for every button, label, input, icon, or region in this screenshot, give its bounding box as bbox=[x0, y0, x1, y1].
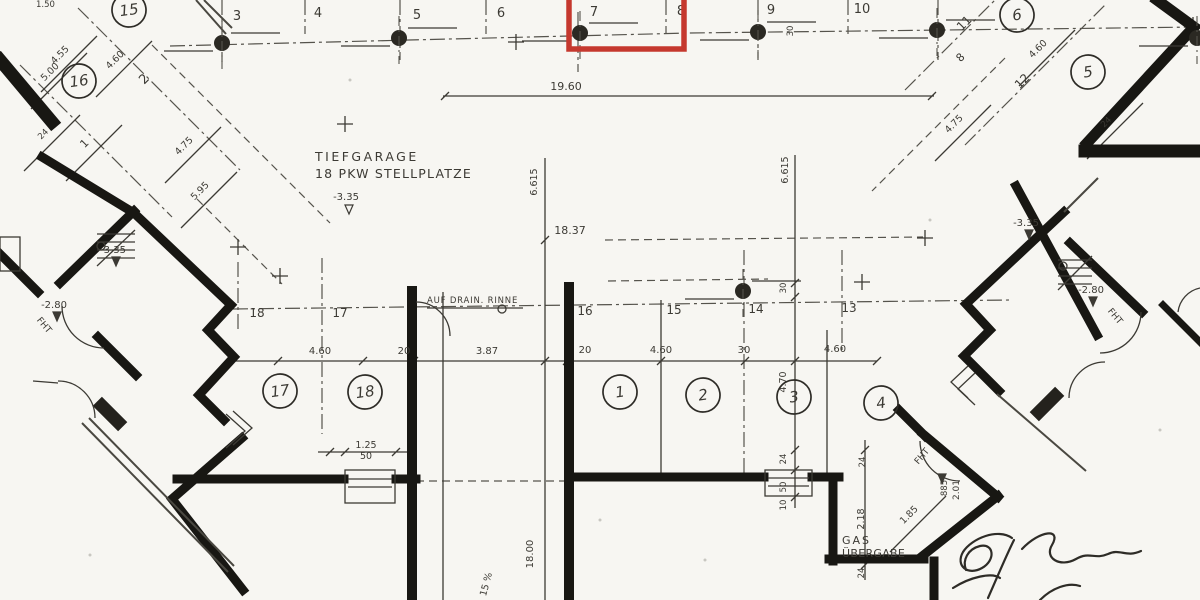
plan-label: 50 bbox=[360, 451, 372, 462]
plan-label: 17 bbox=[332, 306, 347, 320]
plan-label: -3.35 bbox=[1013, 218, 1039, 229]
number-text: 4 bbox=[875, 393, 887, 412]
plan-label: 8 bbox=[953, 50, 967, 64]
plan-label: AUF DRAIN. RINNE bbox=[427, 296, 518, 306]
plan-label: 6 bbox=[497, 6, 505, 21]
floor-plan-drawing: TIEFGARAGE18 PKW STELLPLATZEAUF DRAIN. R… bbox=[0, 0, 1200, 600]
plan-label: 3.87 bbox=[476, 346, 498, 357]
plan-label: FHT bbox=[34, 316, 53, 336]
plan-label: 9 bbox=[767, 3, 775, 18]
number-text: 17 bbox=[269, 381, 291, 402]
level-markers bbox=[53, 205, 1097, 483]
plan-label: -3.35 bbox=[333, 192, 359, 203]
plan-label: 24 bbox=[857, 568, 867, 579]
level-marker-filled bbox=[112, 257, 120, 266]
plan-label: 4.60 bbox=[824, 344, 846, 355]
plan-label: GAS bbox=[842, 534, 871, 547]
level-marker-open bbox=[345, 205, 353, 214]
plan-label: 19.60 bbox=[550, 80, 582, 93]
column bbox=[164, 21, 280, 69]
plan-text-labels: TIEFGARAGE18 PKW STELLPLATZEAUF DRAIN. R… bbox=[34, 0, 1124, 597]
plan-label: 4.60 bbox=[650, 345, 672, 356]
plan-label: 4 bbox=[314, 6, 322, 21]
plan-label: 18.00 bbox=[525, 540, 536, 569]
plan-label: 2.01 bbox=[952, 480, 962, 500]
wall-pier-right bbox=[1030, 387, 1065, 422]
plan-label: 24 bbox=[779, 454, 789, 465]
circled-number: 1 bbox=[601, 373, 639, 411]
plan-label: 10 bbox=[779, 500, 789, 511]
plan-label: 1.50 bbox=[36, 0, 55, 10]
plan-label: 7 bbox=[590, 5, 598, 20]
plan-label: 15 bbox=[666, 303, 681, 317]
column bbox=[700, 10, 816, 58]
level-marker-filled bbox=[1089, 297, 1097, 306]
plan-label: 1 bbox=[77, 136, 91, 150]
plan-label: -2.80 bbox=[41, 300, 67, 311]
plan-label: 3 bbox=[233, 9, 241, 24]
plan-label: 2.18 bbox=[856, 508, 867, 529]
dashed-construction-lines bbox=[152, 45, 1005, 481]
scan-specks bbox=[89, 79, 1162, 562]
plan-label: 18.37 bbox=[554, 224, 586, 237]
plan-label: 885 bbox=[940, 480, 950, 496]
plan-label: 10 bbox=[854, 2, 871, 17]
plan-label: -3.35 bbox=[100, 245, 126, 256]
plan-label: 20 bbox=[579, 345, 592, 356]
plan-label: 24 bbox=[36, 127, 51, 142]
number-text: 15 bbox=[118, 0, 139, 20]
column bbox=[341, 16, 457, 64]
plan-label: 15 % bbox=[478, 571, 495, 597]
plan-label: 4.60 bbox=[104, 49, 127, 72]
parking-space-numbers: 15166517181234 bbox=[60, 0, 1107, 422]
plan-label: 1.25 bbox=[355, 440, 376, 451]
circled-number: 17 bbox=[261, 372, 299, 410]
circled-number: 18 bbox=[346, 373, 384, 411]
plan-label: 24 bbox=[858, 457, 868, 468]
plan-label: 6.615 bbox=[780, 156, 791, 183]
plan-label: 50 bbox=[779, 482, 789, 493]
plan-label: 4.60 bbox=[309, 346, 331, 357]
blueprint-sheet: TIEFGARAGE18 PKW STELLPLATZEAUF DRAIN. R… bbox=[0, 0, 1200, 600]
plan-label: 6.615 bbox=[529, 168, 540, 195]
number-text: 2 bbox=[697, 385, 709, 404]
plan-label: 4.75 bbox=[173, 135, 196, 158]
plan-label: 20 bbox=[398, 346, 411, 357]
plan-label: 1.85 bbox=[898, 504, 921, 527]
circled-number: 4 bbox=[862, 384, 900, 422]
plan-label: TIEFGARAGE bbox=[314, 149, 419, 164]
number-text: 1 bbox=[614, 382, 626, 401]
opening-chevron-right bbox=[951, 366, 975, 405]
number-text: 18 bbox=[354, 382, 375, 402]
plan-label: FHT bbox=[1105, 307, 1124, 327]
plan-label: 5.95 bbox=[189, 180, 212, 203]
level-marker-filled bbox=[53, 312, 61, 321]
highlight-box bbox=[569, 0, 684, 49]
signature-scrawl bbox=[953, 533, 1141, 600]
plan-label: 30 bbox=[738, 345, 751, 356]
plan-label: FHT bbox=[913, 446, 932, 466]
circled-number: 15 bbox=[110, 0, 148, 29]
door-arc-left-outer bbox=[33, 381, 95, 418]
number-text: 3 bbox=[788, 387, 800, 406]
plan-label: 16 bbox=[577, 304, 592, 318]
plan-label: 30 bbox=[779, 283, 789, 294]
number-text: 5 bbox=[1082, 62, 1094, 81]
plan-label: 13 bbox=[841, 301, 856, 315]
plan-label: 2 bbox=[136, 71, 152, 87]
number-text: 16 bbox=[68, 71, 89, 91]
plan-label: ÜBERGABE bbox=[842, 547, 905, 560]
plan-label: -2.80 bbox=[1078, 285, 1104, 296]
circled-number: 5 bbox=[1069, 53, 1107, 91]
plan-label: 14 bbox=[748, 302, 763, 316]
column bbox=[879, 8, 995, 56]
circled-number: 2 bbox=[684, 376, 722, 414]
plan-label: 4.60 bbox=[1027, 38, 1050, 61]
plan-label: 30 bbox=[786, 26, 796, 37]
plan-label: 18 bbox=[249, 306, 264, 320]
plan-label: 12 bbox=[1012, 71, 1033, 92]
number-text: 6 bbox=[1011, 5, 1023, 24]
plan-label: 18 PKW STELLPLATZE bbox=[315, 166, 472, 181]
plan-label: 5 bbox=[413, 8, 421, 23]
